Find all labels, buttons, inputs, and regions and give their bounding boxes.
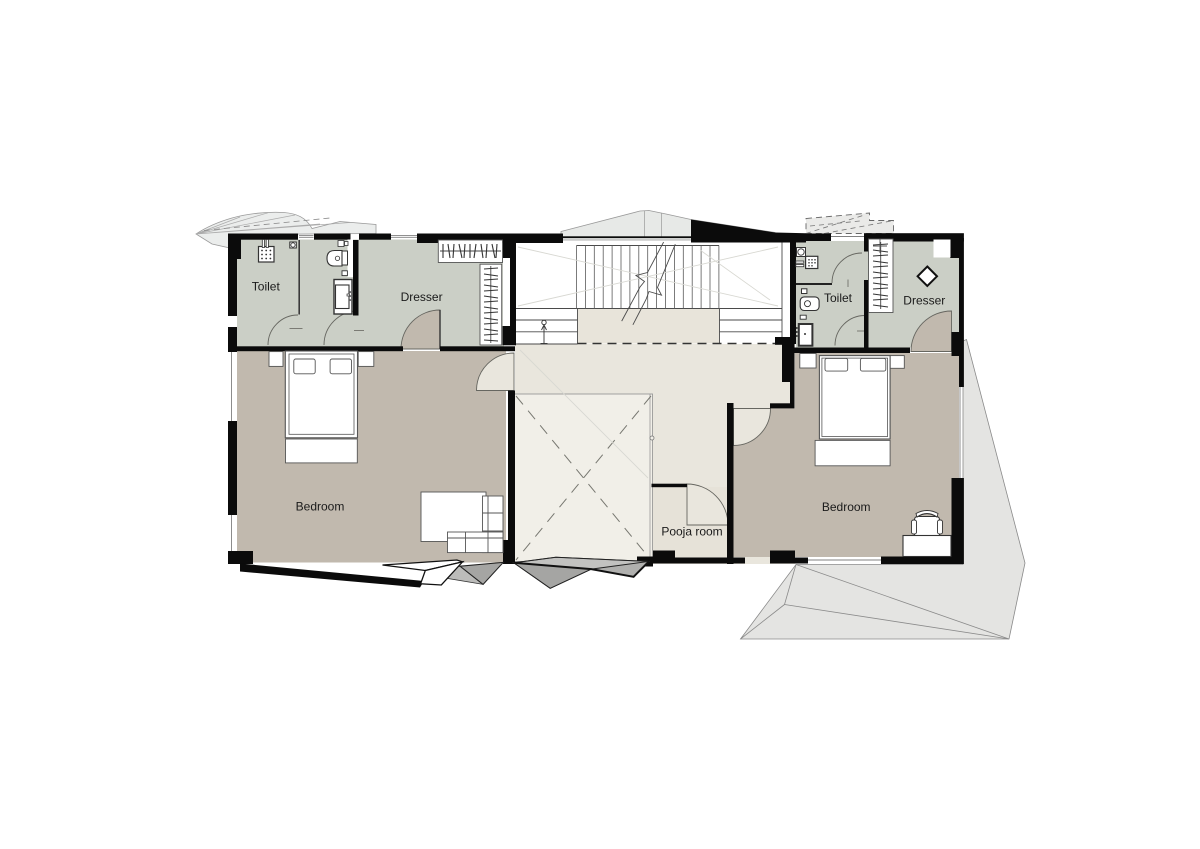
- svg-text:Dresser: Dresser: [903, 293, 945, 307]
- svg-text:Toilet: Toilet: [252, 280, 281, 294]
- svg-text:Dresser: Dresser: [401, 290, 443, 304]
- svg-text:Bedroom: Bedroom: [296, 500, 345, 514]
- svg-text:Bedroom: Bedroom: [822, 500, 871, 514]
- svg-text:Toilet: Toilet: [824, 291, 853, 305]
- svg-text:Pooja room: Pooja room: [661, 525, 722, 539]
